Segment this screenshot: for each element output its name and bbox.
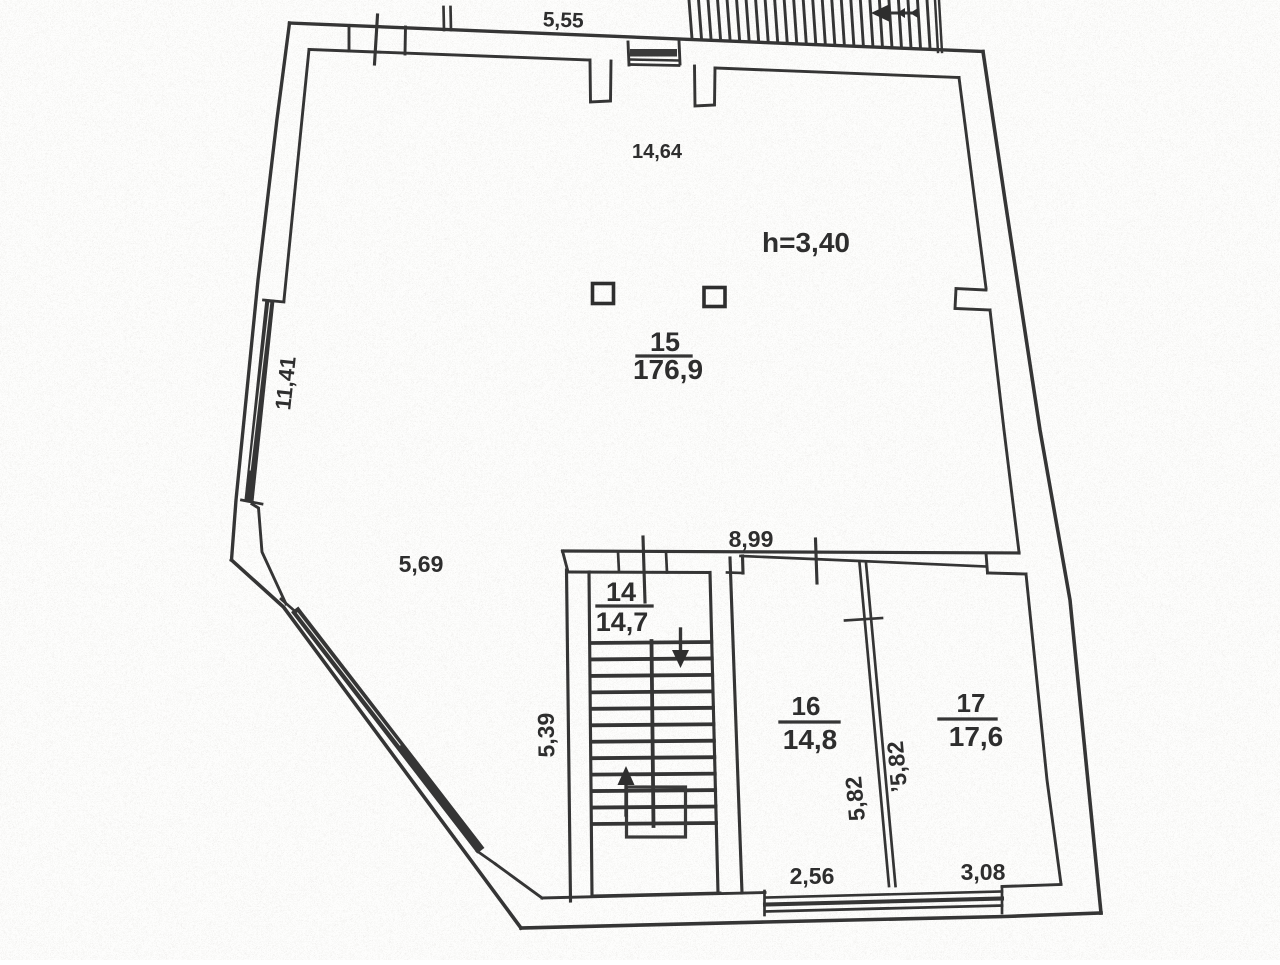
svg-text:8,99: 8,99 bbox=[729, 526, 774, 552]
svg-text:15: 15 bbox=[650, 327, 680, 357]
svg-text:5,82: 5,82 bbox=[840, 775, 870, 822]
svg-text:h=3,40: h=3,40 bbox=[762, 227, 850, 258]
svg-text:5,55: 5,55 bbox=[542, 8, 584, 32]
svg-text:3,08: 3,08 bbox=[961, 859, 1006, 885]
svg-text:16: 16 bbox=[792, 691, 821, 721]
svg-text:17,6: 17,6 bbox=[949, 721, 1004, 752]
svg-text:’5,82: ’5,82 bbox=[882, 740, 912, 793]
svg-text:14,8: 14,8 bbox=[783, 724, 838, 755]
svg-text:17: 17 bbox=[957, 688, 986, 718]
svg-text:5,69: 5,69 bbox=[399, 551, 444, 577]
svg-text:14: 14 bbox=[606, 577, 636, 607]
svg-text:14,64: 14,64 bbox=[632, 141, 683, 163]
svg-text:14,7: 14,7 bbox=[596, 607, 649, 637]
svg-text:176,9: 176,9 bbox=[633, 354, 703, 385]
svg-text:2,56: 2,56 bbox=[790, 863, 835, 889]
svg-text:5,39: 5,39 bbox=[533, 713, 560, 758]
